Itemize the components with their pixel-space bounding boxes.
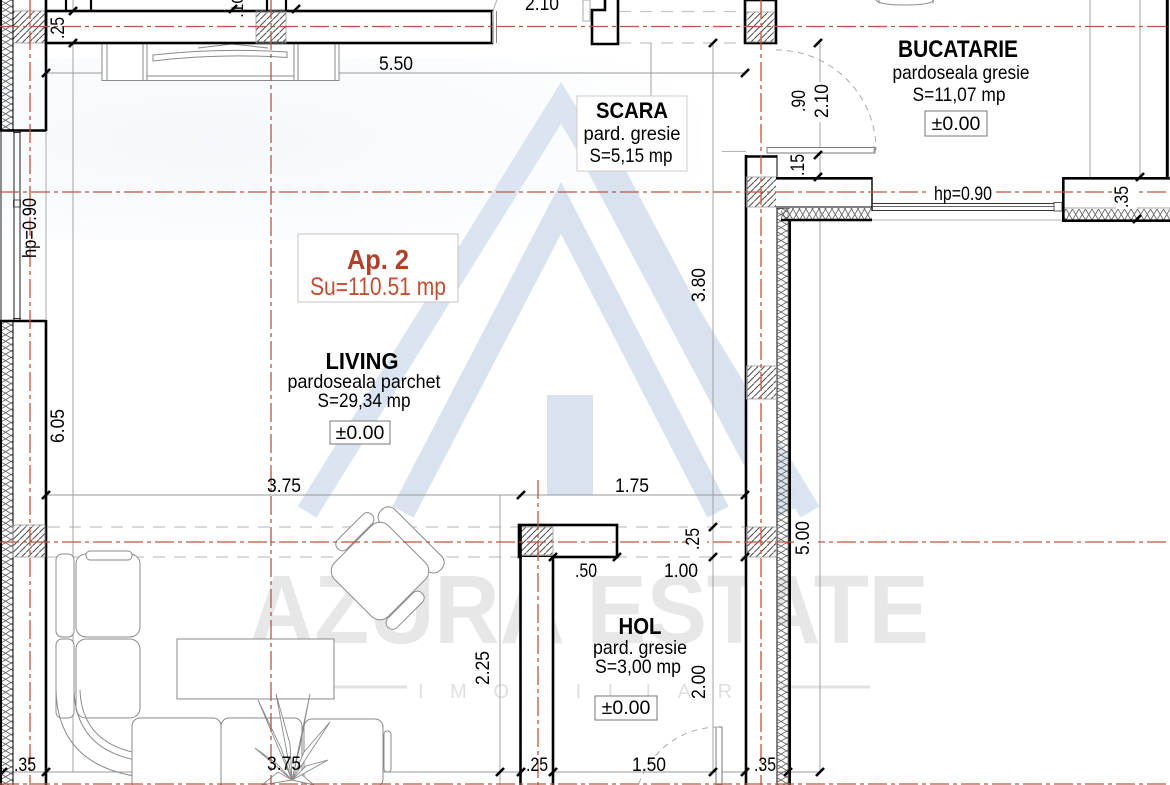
svg-text:HOL: HOL [619, 613, 662, 639]
svg-text:.25: .25 [682, 528, 704, 550]
svg-text:pard. gresie: pard. gresie [584, 124, 681, 145]
svg-text:3.80: 3.80 [688, 268, 710, 302]
svg-text:5.00: 5.00 [792, 521, 814, 555]
svg-text:hp=0.90: hp=0.90 [934, 184, 992, 205]
svg-text:2.00: 2.00 [688, 665, 710, 699]
svg-text:±0.00: ±0.00 [602, 697, 651, 719]
svg-text:S=5,15 mp: S=5,15 mp [590, 146, 673, 167]
svg-text:2.10: 2.10 [811, 84, 833, 118]
svg-text:.35: .35 [1111, 186, 1133, 208]
svg-text:SCARA: SCARA [596, 98, 668, 123]
svg-text:1.75: 1.75 [615, 475, 649, 497]
svg-text:2.10: 2.10 [525, 0, 559, 15]
svg-text:.25: .25 [526, 754, 548, 776]
svg-text:3.75: 3.75 [267, 475, 301, 497]
svg-text:.50: .50 [575, 560, 597, 582]
svg-text:.35: .35 [14, 754, 36, 776]
svg-text:Ap. 2: Ap. 2 [347, 244, 409, 275]
svg-text:±0.00: ±0.00 [336, 422, 385, 444]
svg-text:±0.00: ±0.00 [932, 113, 981, 135]
svg-text:hp=0.90: hp=0.90 [19, 198, 41, 258]
svg-text:.25: .25 [47, 17, 69, 39]
svg-text:1.50: 1.50 [632, 754, 666, 776]
svg-text:.10: .10 [228, 0, 247, 18]
svg-text:S=29,34 mp: S=29,34 mp [318, 390, 411, 412]
svg-text:.15: .15 [787, 154, 809, 176]
svg-text:5.50: 5.50 [379, 53, 413, 75]
svg-text:.35: .35 [754, 754, 776, 776]
svg-text:S=11,07 mp: S=11,07 mp [913, 84, 1006, 106]
svg-text:1.00: 1.00 [664, 560, 698, 582]
svg-text:2.25: 2.25 [472, 651, 494, 685]
svg-text:Su=110.51 mp: Su=110.51 mp [310, 273, 446, 301]
svg-text:.90: .90 [788, 90, 810, 112]
svg-text:S=3,00 mp: S=3,00 mp [595, 656, 681, 678]
svg-text:3.75: 3.75 [267, 753, 301, 775]
svg-text:BUCATARIE: BUCATARIE [898, 36, 1018, 63]
svg-text:6.05: 6.05 [47, 409, 69, 443]
svg-text:pardoseala gresie: pardoseala gresie [893, 62, 1030, 84]
